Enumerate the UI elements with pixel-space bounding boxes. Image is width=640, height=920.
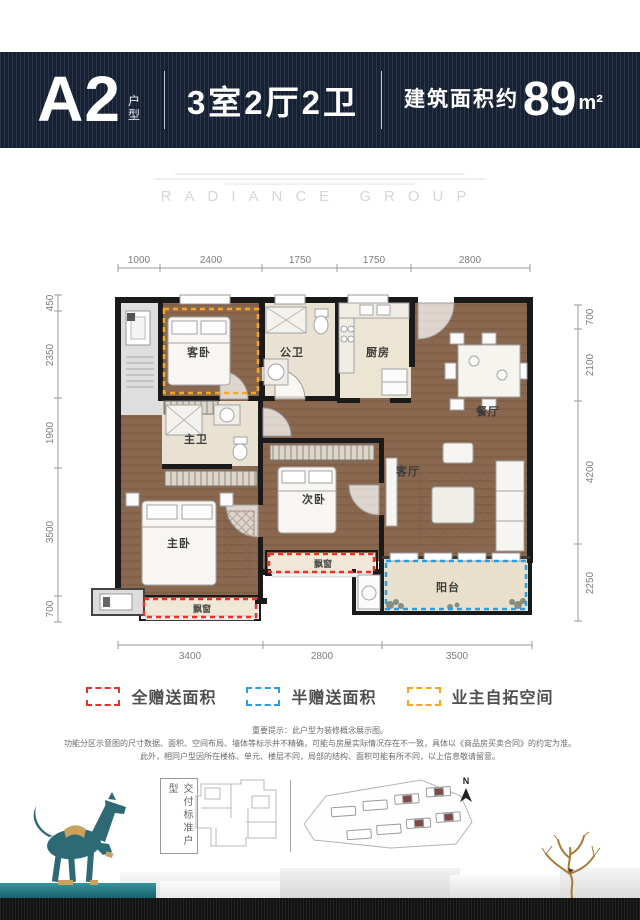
dim-label: 450	[45, 294, 56, 311]
legend: 全赠送面积 半赠送面积 业主自拓空间	[0, 684, 640, 708]
dim-label: 2400	[200, 255, 223, 266]
faint-fine-print	[225, 183, 415, 185]
layout-summary: 3室2厅2卫	[187, 76, 359, 124]
legend-label: 业主自拓空间	[452, 684, 554, 708]
area-value: 89	[523, 80, 576, 121]
site-plan: N	[296, 772, 480, 864]
highlighted-building	[444, 813, 453, 821]
room-label-guest-bedroom: 客卧	[186, 345, 211, 359]
disclaimer-line: 重要提示：此户型为装修概念展示图。	[40, 724, 600, 737]
horse-sculpture	[16, 792, 138, 890]
skyline-block	[160, 881, 280, 898]
dim-label: 700	[45, 600, 56, 617]
disclaimer-line: 此外，相同户型因所在楼栋、单元、楼层不同，局部的结构、面积可能有所不同，以上信息…	[40, 750, 600, 763]
unit-code-group: A2 户型	[37, 71, 142, 129]
room-label-living-room: 客厅	[395, 464, 420, 478]
owner-expand-swatch	[407, 687, 441, 706]
room-label-dining-room: 餐厅	[475, 404, 500, 418]
disclaimer-line: 功能分区示意图的尺寸数据、面积、空间布局、墙体等标示并不精确，可能与房屋实际情况…	[40, 737, 600, 750]
room-label-public-bathroom: 公卫	[280, 346, 304, 359]
dim-label: 700	[585, 308, 596, 325]
title-banner: A2 户型 3室2厅2卫 建筑面积约 89 m²	[0, 52, 640, 148]
mini-floorplan-drawing	[186, 776, 286, 856]
dim-label: 2250	[585, 571, 596, 594]
dim-label: 2350	[45, 343, 56, 366]
north-label: N	[463, 776, 470, 786]
area-prefix: 建筑面积约	[404, 83, 519, 113]
base-strip	[0, 898, 640, 920]
dim-label: 2800	[311, 651, 334, 662]
room-label-master-bathroom: 主卫	[184, 432, 208, 446]
area-unit: m²	[578, 92, 602, 115]
legend-item-half-gift: 半赠送面积	[246, 684, 376, 708]
room-label-bay-window-second: 飘窗	[314, 558, 332, 569]
page: A2 户型 3室2厅2卫 建筑面积约 89 m² RADIANCE GROUP	[0, 0, 640, 920]
header-divider	[381, 71, 382, 129]
dim-label: 1750	[363, 255, 386, 266]
faint-fine-print	[155, 178, 485, 180]
full-gift-swatch	[86, 687, 120, 706]
north-arrow-icon: N	[460, 776, 472, 802]
highlighted-building	[403, 795, 412, 803]
header-divider	[164, 71, 165, 129]
highlighted-building	[414, 819, 423, 827]
brand-watermark: RADIANCE GROUP	[0, 188, 640, 205]
footer-divider	[290, 780, 291, 852]
dim-label: 2800	[459, 255, 482, 266]
dim-label: 1000	[128, 255, 151, 266]
unit-code-suffix: 户型	[128, 95, 142, 123]
floor-plan: 客卧 公卫 厨房 餐厅 主卫 主卧 次卧 客厅 阳台 飘窗 飘窗	[30, 253, 610, 678]
hall-wardrobe-icon	[270, 445, 374, 460]
area-group: 建筑面积约 89 m²	[404, 80, 603, 121]
skyline-block	[280, 868, 460, 898]
room-label-bay-window-master: 飘窗	[193, 603, 211, 614]
room-label-balcony: 阳台	[436, 580, 460, 594]
dim-label: 1750	[289, 255, 312, 266]
legend-item-owner-expand: 业主自拓空间	[407, 684, 554, 708]
legend-label: 半赠送面积	[291, 684, 376, 708]
disclaimer: 重要提示：此户型为装修概念展示图。 功能分区示意图的尺寸数据、面积、空间布局、墙…	[40, 724, 600, 764]
room-label-second-bedroom: 次卧	[302, 492, 326, 506]
washer-icon	[358, 575, 380, 609]
legend-item-full-gift: 全赠送面积	[86, 684, 216, 708]
faint-fine-print	[175, 173, 465, 175]
room-label-kitchen: 厨房	[366, 345, 390, 359]
dim-label: 2100	[585, 353, 596, 376]
dim-label: 1900	[45, 421, 56, 444]
room-label-master-bedroom: 主卧	[167, 536, 191, 550]
dim-label: 4200	[585, 460, 596, 483]
tree-branch	[534, 828, 606, 898]
dim-label: 3400	[179, 651, 202, 662]
dim-label: 3500	[45, 520, 56, 543]
unit-code: A2	[37, 71, 121, 129]
highlighted-building	[434, 788, 443, 796]
half-gift-swatch	[246, 687, 280, 706]
dim-label: 3500	[446, 651, 469, 662]
legend-label: 全赠送面积	[131, 684, 216, 708]
